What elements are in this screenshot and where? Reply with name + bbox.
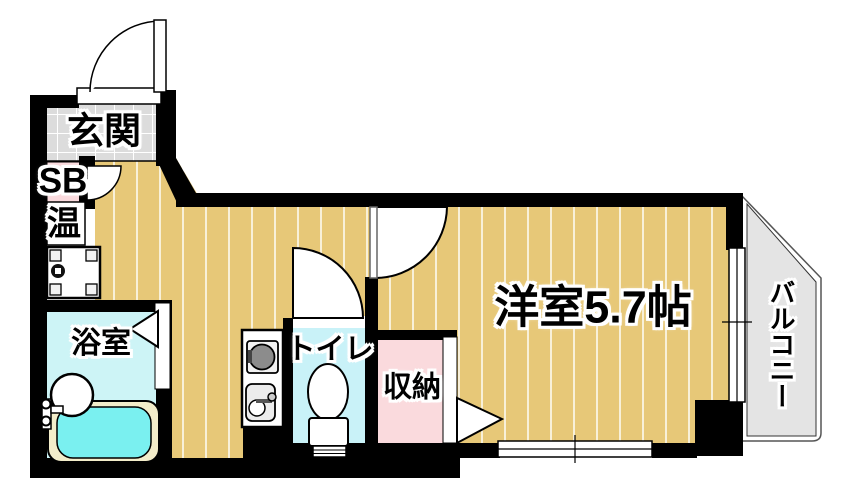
toilet-tank <box>309 418 348 446</box>
stove-burner-icon <box>250 345 275 370</box>
room-label-water-heater: 温 <box>47 207 81 241</box>
sink-faucet-knob <box>268 393 276 401</box>
stove-knob <box>248 350 252 363</box>
wall-toilet-storage-divider <box>365 277 378 458</box>
entrance-door-arc <box>90 21 161 92</box>
wall-bathroom-top <box>30 300 172 312</box>
wall-bottom-right-block <box>695 400 743 456</box>
wall-bottom-b <box>652 443 697 458</box>
toilet-bowl <box>308 364 348 420</box>
wall-top-main <box>176 193 743 207</box>
main-room-door-leaf <box>370 207 377 278</box>
floor-plan-drawing <box>0 0 861 490</box>
pan-corner <box>50 284 61 295</box>
room-label-toilet: トイレ <box>286 336 373 365</box>
wall-right-upper <box>726 193 743 250</box>
room-label-western-room: 洋室5.7帖 <box>494 285 692 330</box>
pan-drain-center <box>55 268 61 274</box>
room-label-storage: 収納 <box>383 374 441 403</box>
kitchen-unit <box>242 330 283 427</box>
toilet-base <box>313 446 346 457</box>
room-label-shoe-box: SB <box>39 164 88 199</box>
pan-corner <box>86 284 97 295</box>
wall-top-left <box>30 95 79 108</box>
wall-storage-bottom <box>378 443 448 458</box>
wall-bottom-a <box>448 443 500 458</box>
room-label-balcony: バルコニー <box>768 279 794 409</box>
floor-plan: 玄関 SB 温 浴室 トイレ 収納 洋室5.7帖 バルコニー <box>0 0 861 490</box>
entrance-door-leaf <box>154 20 166 92</box>
faucet-spout <box>51 406 63 413</box>
toilet-fixture <box>308 364 348 457</box>
pan-corner <box>86 250 97 261</box>
faucet-handle <box>42 417 51 426</box>
entrance-door <box>90 20 166 92</box>
pan-corner <box>50 250 61 261</box>
faucet-handle <box>42 400 51 409</box>
wall-kitchen-bottom <box>243 425 293 478</box>
room-label-bathroom: 浴室 <box>71 329 131 359</box>
storage-door-panel <box>443 337 457 443</box>
washing-machine-pan <box>47 247 100 298</box>
room-label-entrance: 玄関 <box>67 113 141 150</box>
